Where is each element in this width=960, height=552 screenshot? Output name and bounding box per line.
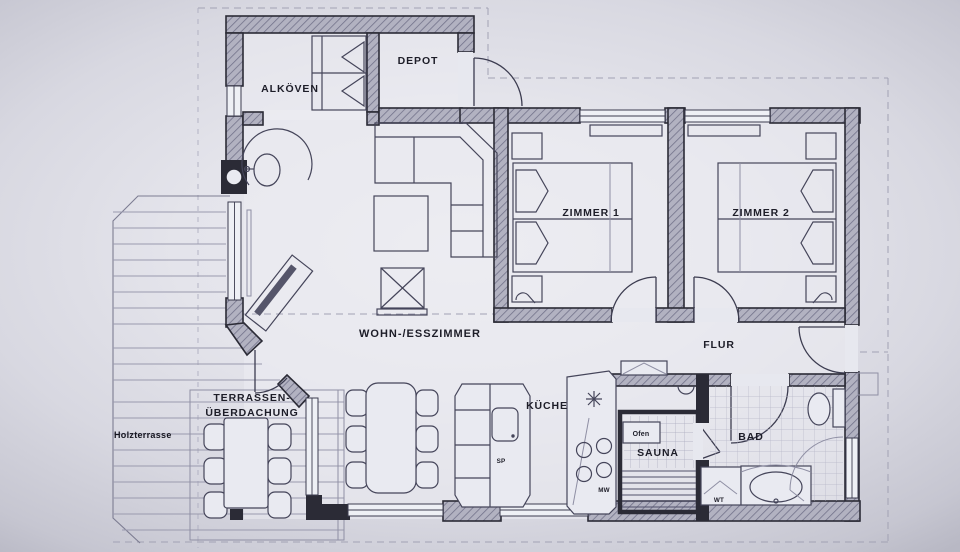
room-label-sauna: SAUNA [637,447,679,459]
terrace-dining-set-icon [204,418,291,520]
terrasse-label-line1: TERRASSEN- [213,392,290,404]
floor-plan-drawing: Holzterrasse [0,0,960,552]
room-bad: WT BAD [701,386,845,505]
chimney [221,160,247,194]
room-label-zimmer1: ZIMMER 1 [562,207,619,219]
floor-plan-photo: Holzterrasse [0,0,960,552]
entry-step [858,373,878,395]
microwave-label: MW [598,487,610,494]
room-label-bad: BAD [738,431,763,443]
room-depot: DEPOT [398,55,439,67]
room-label-alkoven: ALKÖVEN [261,82,319,95]
holzterrasse-label: Holzterrasse [114,430,172,440]
dining-set-icon [346,383,438,493]
depot-exterior-door [474,58,522,106]
washbasin-unit: WT [701,467,741,505]
room-label-wohn: WOHN-/ESSZIMMER [359,328,481,340]
room-label-depot: DEPOT [398,55,439,67]
lamp-icon [586,391,602,407]
kitchen-wall-unit: MW [567,371,616,514]
terrasse-label-line2: ÜBERDACHUNG [205,406,298,419]
kitchen-island: SP [455,384,530,507]
room-label-flur: FLUR [703,339,735,351]
dishwasher-label: SP [497,458,506,465]
room-label-kueche: KÜCHE [526,399,568,412]
sauna-stove: Ofen [623,422,660,443]
ofen-label: Ofen [633,431,650,438]
room-label-zimmer2: ZIMMER 2 [732,207,789,219]
hall-cabinet [621,361,667,375]
wt-label: WT [714,497,724,504]
roof-post [230,509,243,520]
bathtub-icon [741,465,811,505]
